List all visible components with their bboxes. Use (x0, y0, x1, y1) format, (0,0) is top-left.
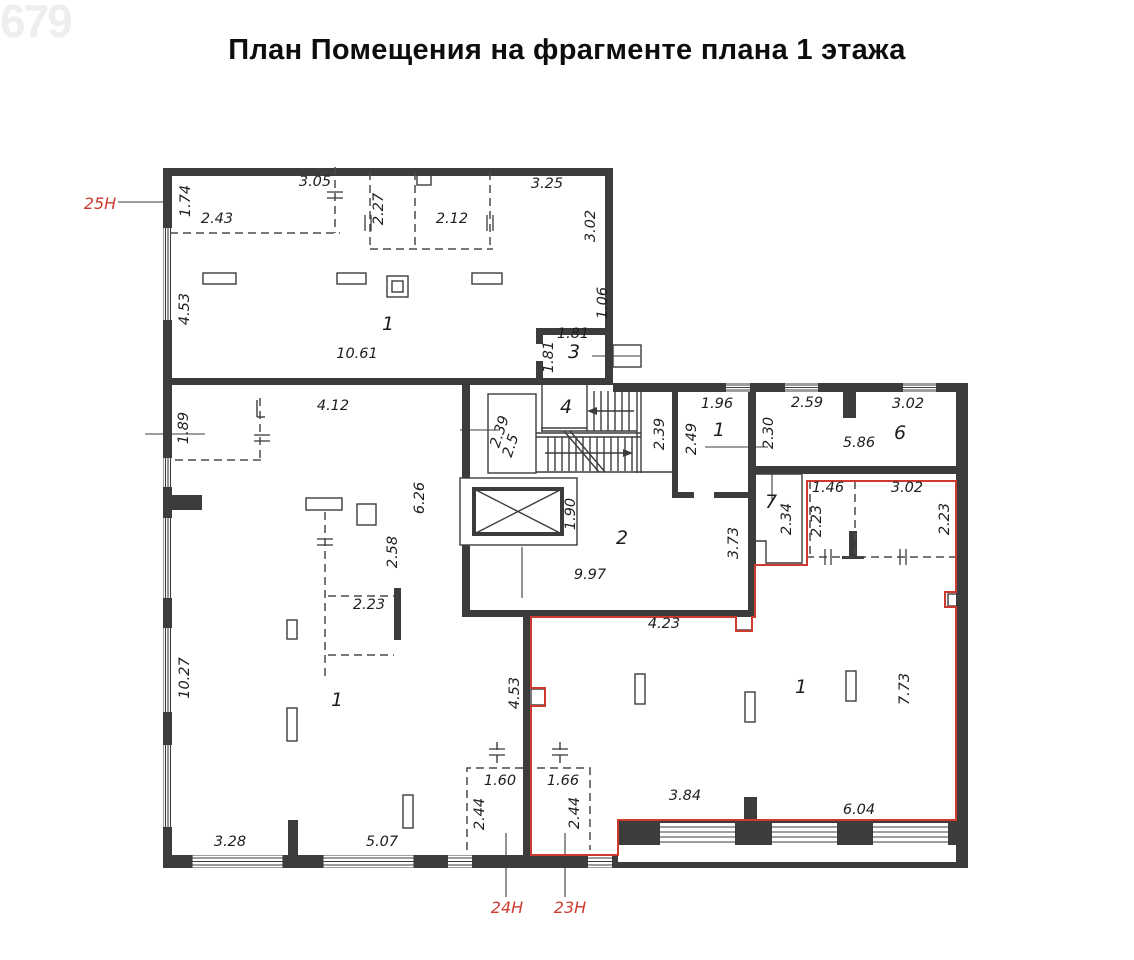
dim-label: 9.97 (574, 567, 607, 583)
dim-label: 4.23 (648, 616, 680, 632)
room-label: 3 (568, 341, 580, 363)
redlbl-label: 24Н (491, 898, 523, 917)
dim-label: 5.07 (366, 834, 399, 850)
partitions-and-columns (203, 172, 960, 828)
premises-labels: 25Н24Н23Н (84, 194, 586, 917)
window (323, 856, 414, 868)
dim-label: 3.73 (726, 527, 742, 559)
dim-label: 1.81 (557, 326, 589, 342)
dim-label: 2.30 (761, 417, 777, 449)
elevator-shaft (460, 478, 577, 545)
room-label: 7 (765, 491, 777, 513)
dim-label: 1.66 (547, 773, 579, 789)
dim-label: 2.58 (385, 536, 401, 568)
room-label: 4 (560, 396, 572, 418)
dim-label: 6.04 (843, 802, 875, 818)
floor-plan: 1.742.433.052.272.123.253.024.531.061.81… (0, 0, 1134, 960)
dim-label: 6.26 (412, 482, 428, 514)
dim-label: 2.44 (472, 798, 488, 830)
page: { "page": { "title": "План Помещения на … (0, 0, 1134, 960)
window (785, 384, 818, 392)
window (164, 458, 173, 487)
dim-label: 1.90 (563, 498, 579, 530)
room-label: 1 (795, 676, 807, 698)
window (660, 827, 735, 842)
dim-label: 2.12 (436, 211, 468, 227)
dim-label: 10.27 (177, 656, 193, 698)
redlbl-label: 25Н (84, 194, 116, 213)
dim-label: 3.02 (892, 396, 924, 412)
redlbl-label: 23Н (554, 898, 586, 917)
dim-label: 5.86 (843, 435, 875, 451)
dim-label: 10.61 (336, 346, 378, 362)
dim-label: 2.39 (652, 418, 668, 450)
room-label: 1 (331, 689, 343, 711)
window (903, 384, 936, 392)
dim-label: 4.12 (317, 398, 349, 414)
dim-label: 2.44 (567, 797, 583, 829)
dim-label: 2.23 (937, 503, 953, 535)
window (588, 856, 612, 868)
room-label: 1 (713, 419, 725, 441)
window (192, 856, 283, 868)
dim-label: 1.06 (595, 287, 611, 319)
premises-23n-boundary (531, 481, 956, 855)
dim-label: 2.49 (684, 423, 700, 455)
window (448, 856, 472, 868)
dim-label: 1.46 (812, 480, 844, 496)
windows (164, 228, 949, 868)
dim-label: 3.28 (214, 834, 246, 850)
window (772, 827, 837, 842)
dim-label: 3.84 (669, 788, 701, 804)
dim-label: 3.02 (891, 480, 923, 496)
room-label: 2 (616, 527, 628, 549)
dim-label: 1.74 (178, 185, 194, 217)
dim-label: 2.23 (353, 597, 385, 613)
dim-label: 1.96 (701, 396, 733, 412)
window (726, 384, 750, 392)
dim-label: 1.89 (176, 412, 192, 444)
window (873, 827, 948, 842)
dim-label: 2.43 (201, 211, 233, 227)
dim-label: 7.73 (897, 673, 913, 705)
dim-label: 3.02 (583, 210, 599, 242)
dim-label: 2.27 (371, 192, 387, 225)
dim-label: 1.81 (541, 341, 557, 373)
dim-label: 3.25 (531, 176, 563, 192)
room-label: 6 (894, 422, 906, 444)
room-label: 1 (382, 313, 394, 335)
window (164, 745, 173, 827)
stair-core (488, 385, 672, 473)
dim-label: 4.53 (177, 293, 193, 325)
dim-label: 2.59 (791, 395, 823, 411)
dim-label: 2.23 (809, 505, 825, 537)
window (164, 518, 173, 598)
window (164, 628, 173, 712)
dim-label: 3.05 (299, 174, 331, 190)
dim-label: 2.34 (779, 503, 795, 535)
window (164, 228, 173, 320)
dim-label: 4.53 (507, 677, 523, 709)
dim-label: 1.60 (484, 773, 516, 789)
